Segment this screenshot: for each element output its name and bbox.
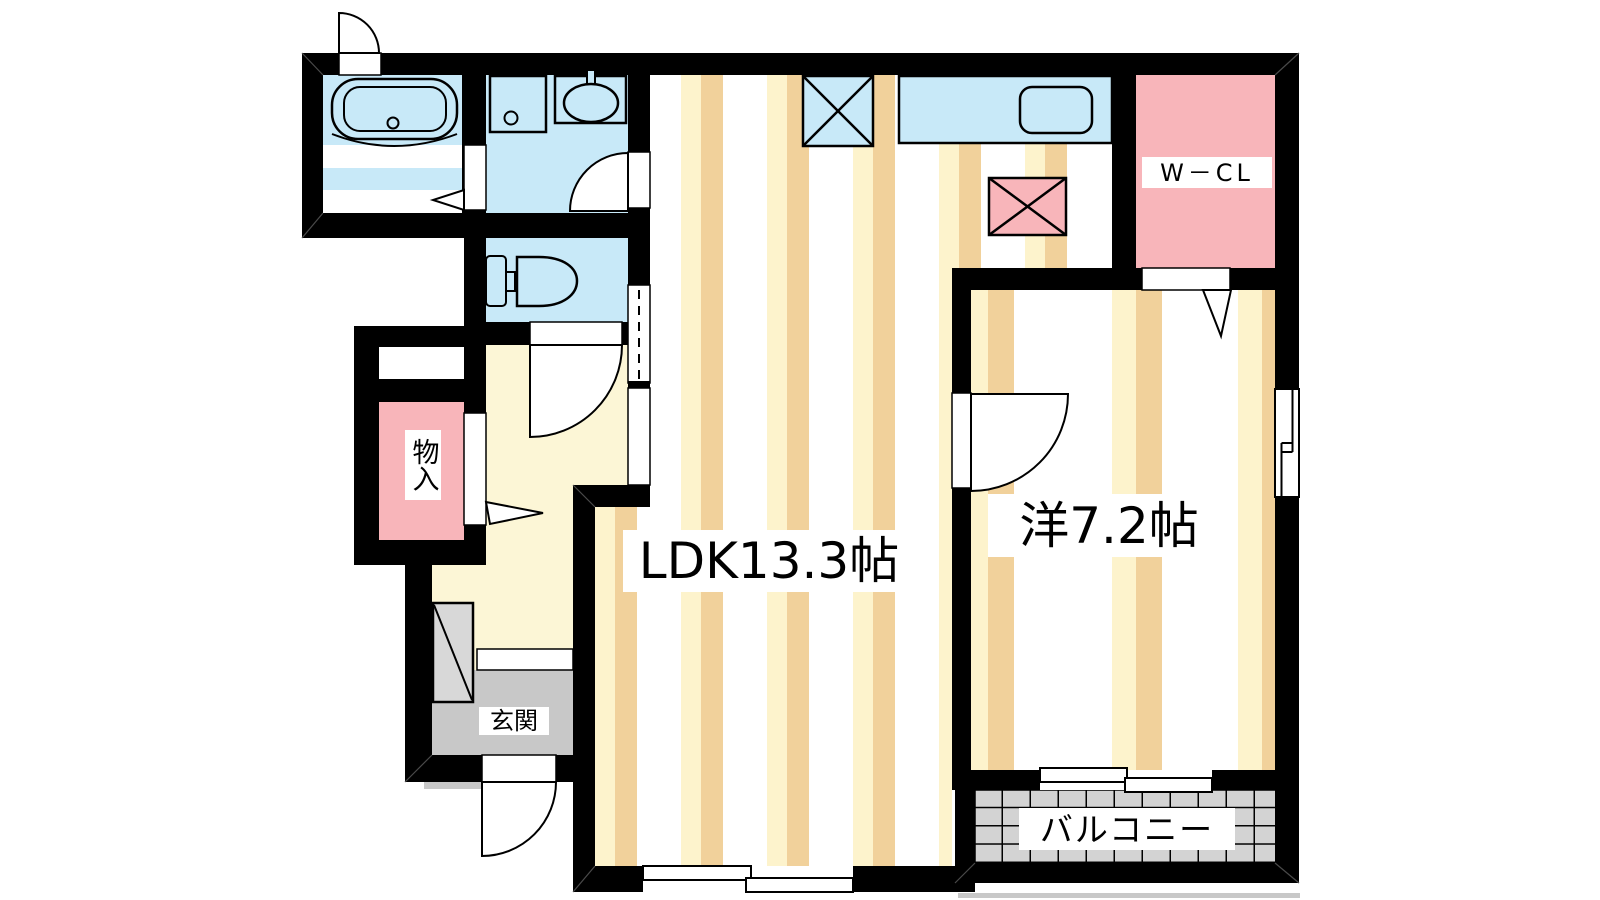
laundry-space-x-icon	[989, 178, 1066, 235]
toilet-icon	[486, 256, 577, 306]
storage-door	[464, 413, 486, 525]
hall-ldk-sliding-door	[628, 285, 650, 383]
bathroom-door	[464, 145, 486, 210]
ldk-window-sash-right	[746, 878, 853, 892]
toilet-door-gap	[530, 322, 622, 345]
entrance-step	[477, 649, 573, 670]
storage-label: 物入	[405, 430, 441, 500]
bath-top-door-gap	[339, 53, 381, 75]
entrance-door-gap	[482, 755, 556, 782]
washroom-door-gap	[628, 152, 650, 208]
balcony-label: バルコニー	[1019, 808, 1235, 850]
refrigerator-space-x-icon	[803, 76, 873, 146]
shoe-cabinet	[433, 603, 473, 702]
balcony-window-sash-right	[1125, 778, 1212, 792]
floor-plan-page: LDK13.3帖 洋7.2帖 W－CL 物入 玄関 バルコニー	[0, 0, 1600, 900]
entrance-label: 玄関	[479, 707, 549, 735]
ldk-window-sash-left	[643, 866, 751, 880]
walk-in-closet-label: W－CL	[1142, 157, 1272, 188]
balcony-window-sash-left	[1040, 768, 1127, 782]
bath-top-door-swing	[339, 13, 379, 53]
kitchen-counter	[899, 76, 1112, 143]
storage-niche	[379, 347, 464, 379]
hall-ldk-opening	[628, 388, 650, 485]
bedroom-door-gap	[952, 393, 971, 488]
bathtub-icon	[332, 79, 457, 146]
ldk-room-label: LDK13.3帖	[623, 530, 915, 592]
balcony-ground-line	[958, 893, 1300, 898]
wcl-door-gap	[1142, 268, 1230, 290]
entrance-door-swing	[482, 782, 556, 856]
western-room-label: 洋7.2帖	[988, 494, 1230, 557]
floor-plan-canvas	[0, 0, 1600, 900]
